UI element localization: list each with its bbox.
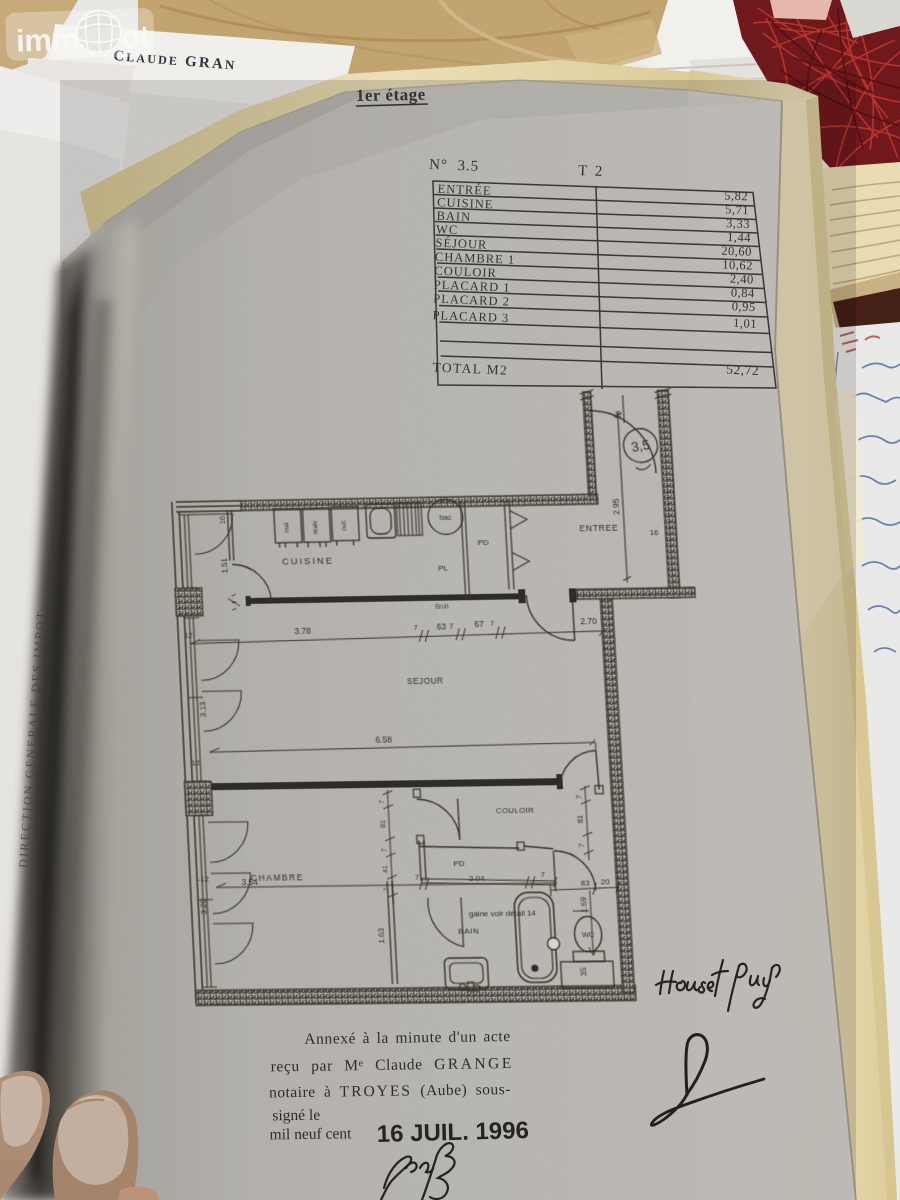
svg-text:PD: PD [477,538,489,547]
svg-text:67: 67 [474,620,484,629]
svg-text:7: 7 [381,848,388,852]
svg-text:7: 7 [415,873,420,882]
svg-text:ENTREE: ENTREE [579,523,619,533]
svg-text:81: 81 [380,820,388,828]
svg-text:malv: malv [312,519,320,534]
svg-text:7: 7 [449,621,454,630]
svg-text:1.51: 1.51 [220,558,230,574]
svg-text:2.95: 2.95 [611,498,621,515]
svg-text:COULOIR: COULOIR [496,805,535,815]
svg-text:7: 7 [577,843,587,847]
svg-text:3.54: 3.54 [241,878,258,888]
svg-text:7: 7 [540,870,545,879]
svg-text:16: 16 [613,411,623,419]
svg-text:41: 41 [382,865,390,873]
svg-text:SEJOUR: SEJOUR [407,676,444,686]
svg-text:16: 16 [649,528,658,537]
svg-text:7: 7 [490,619,495,628]
svg-text:2.70: 2.70 [580,617,597,627]
svg-text:CUISINE: CUISINE [282,555,334,566]
svg-text:83: 83 [581,878,590,887]
svg-text:35: 35 [579,967,589,976]
svg-text:2.04: 2.04 [469,874,486,884]
svg-text:bac: bac [439,513,452,522]
svg-text:PL: PL [438,563,449,572]
svg-text:3.13: 3.13 [198,702,208,718]
svg-text:1.63: 1.63 [376,928,386,944]
svg-text:3.20: 3.20 [199,899,209,915]
svg-text:mal: mal [283,522,291,533]
svg-text:gaine voir détail 14: gaine voir détail 14 [469,908,537,918]
svg-text:Bruit: Bruit [435,603,449,610]
svg-text:CHAMBRE: CHAMBRE [251,873,305,883]
svg-text:63: 63 [436,622,446,631]
svg-text:3.78: 3.78 [294,627,311,637]
svg-text:12: 12 [191,758,200,767]
svg-text:7: 7 [379,800,386,804]
svg-text:12: 12 [184,631,193,640]
svg-text:20: 20 [601,877,610,886]
svg-text:3,5: 3,5 [630,437,651,455]
svg-text:81: 81 [575,815,585,824]
svg-text:7: 7 [413,623,418,632]
svg-text:7: 7 [574,795,584,799]
svg-text:6.58: 6.58 [375,735,392,745]
svg-text:16: 16 [218,516,228,524]
svg-text:-12: -12 [198,874,209,883]
svg-text:BAIN: BAIN [458,926,480,936]
svg-text:PD: PD [453,859,465,868]
svg-text:WC: WC [582,930,595,940]
svg-text:cuit: cuit [340,520,348,530]
